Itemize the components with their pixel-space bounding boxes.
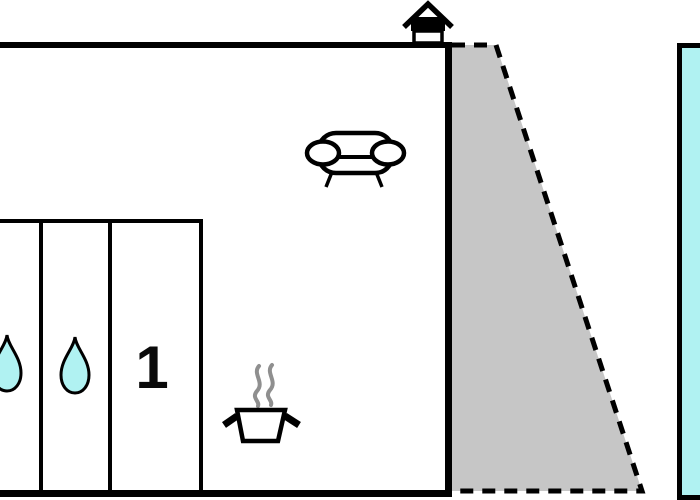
steam-line-left: [255, 366, 260, 406]
house-icon: [404, 4, 452, 43]
bedroom-label: 1: [135, 334, 168, 401]
water-drop-icon-right: [61, 337, 89, 393]
pot-handle-left: [224, 416, 237, 425]
house-body-dark: [411, 17, 445, 31]
sofa-armrest-left: [307, 142, 339, 165]
pot-body: [237, 410, 285, 441]
floor-plan-canvas: 1: [0, 0, 700, 500]
rooms-top-wall: [0, 219, 203, 223]
pot-handle-right: [285, 416, 299, 425]
sofa-icon: [307, 133, 404, 187]
sofa-leg-left: [326, 172, 332, 187]
cooking-pot-icon: [224, 365, 299, 441]
top-wall: [0, 42, 452, 48]
terrace-area: [450, 45, 642, 491]
bottom-wall: [0, 490, 452, 497]
floor-plan: 1: [0, 0, 700, 500]
room-divider-wall-3: [199, 219, 203, 490]
water-drop-icon-left: [0, 335, 21, 391]
room-divider-wall-1: [39, 219, 43, 490]
right-wall: [445, 42, 452, 497]
house-door: [414, 31, 442, 43]
steam-line-right: [268, 365, 273, 405]
sofa-armrest-right: [372, 142, 404, 165]
pool-area: [680, 46, 700, 498]
room-divider-wall-2: [108, 219, 112, 490]
